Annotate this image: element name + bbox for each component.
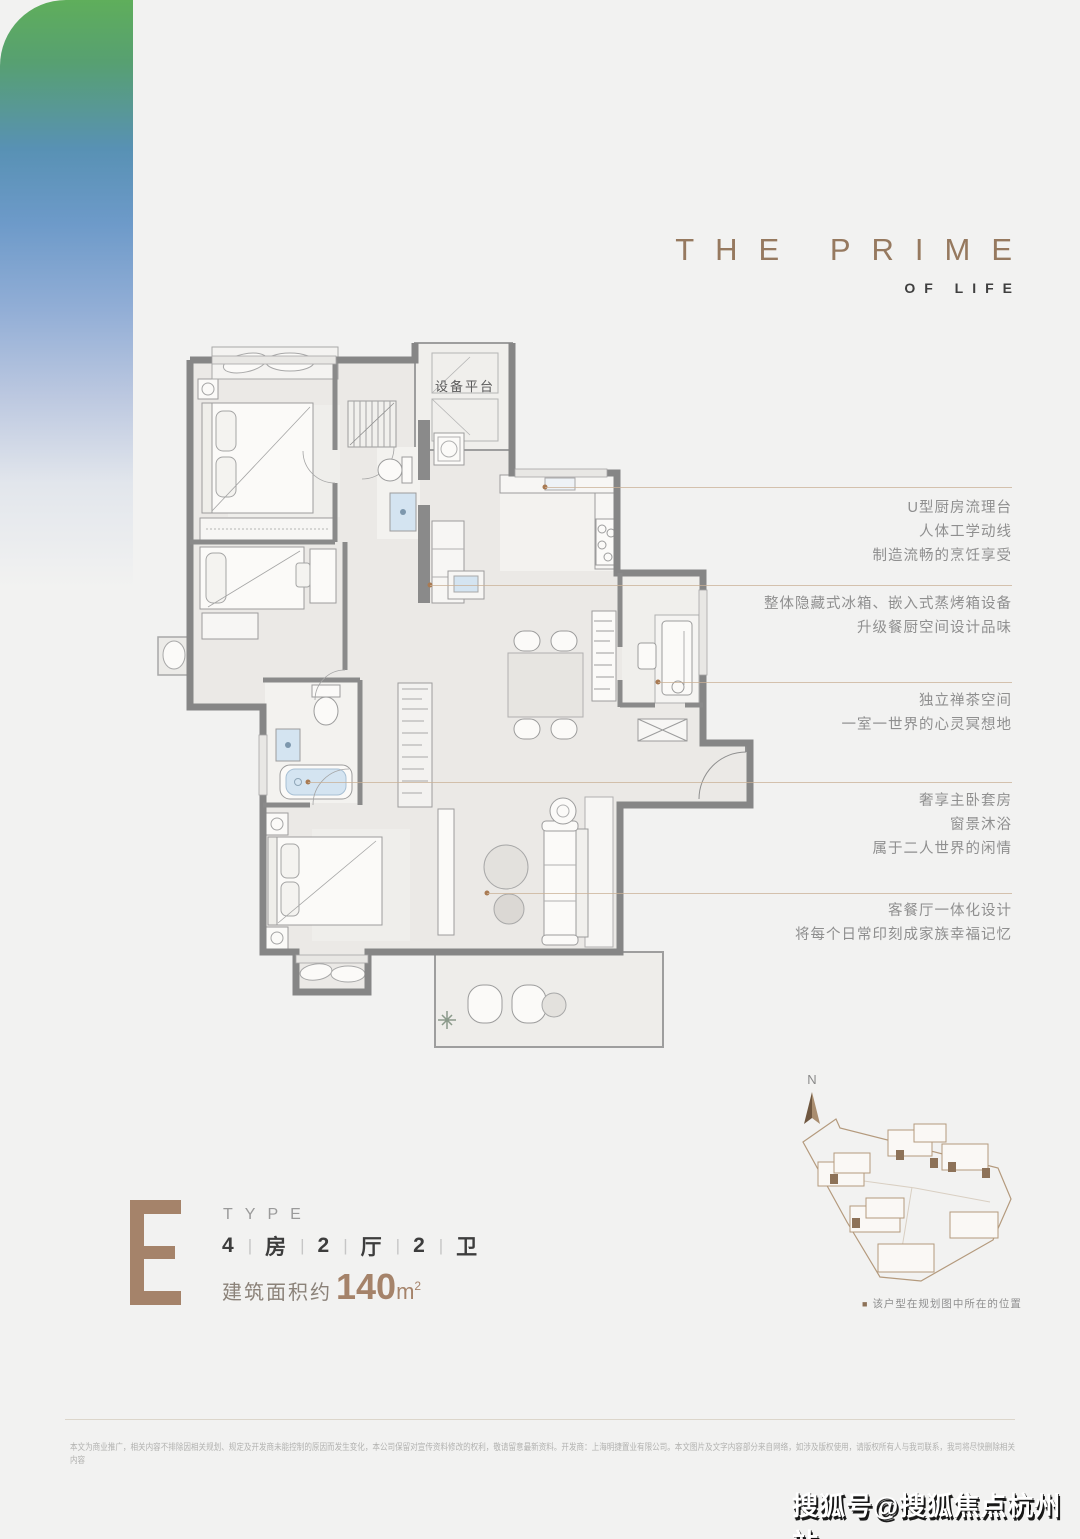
leader-line-master: [308, 782, 1012, 783]
annotation-line: 将每个日常印刻成家族幸福记忆: [572, 923, 1012, 947]
annotation-line: 独立禅茶空间: [572, 689, 1012, 713]
area-superscript: 2: [414, 1279, 421, 1293]
area-unit: m: [396, 1279, 414, 1305]
annotation-tea-room: 独立禅茶空间 一室一世界的心灵冥想地: [572, 689, 1012, 737]
north-arrow: [804, 1092, 812, 1124]
washer: [434, 433, 464, 465]
title-block: THE PRIME OF LIFE: [675, 232, 1012, 296]
type-word: TYPE: [223, 1206, 313, 1224]
annotation-line: 整体隐藏式冰箱、嵌入式蒸烤箱设备: [572, 592, 1012, 616]
north-label: N: [807, 1072, 816, 1087]
type-letter-E: [130, 1200, 181, 1305]
annotation-fridge: 整体隐藏式冰箱、嵌入式蒸烤箱设备 升级餐厨空间设计品味: [572, 592, 1012, 640]
halls-label: 厅: [361, 1231, 383, 1261]
poster-subtitle: OF LIFE: [675, 280, 1021, 296]
halls-count: 2: [318, 1234, 331, 1258]
annotation-line: 客餐厅一体化设计: [572, 899, 1012, 923]
annotation-kitchen: U型厨房流理台 人体工学动线 制造流畅的烹饪享受: [572, 496, 1012, 568]
gradient-ribbon: [0, 0, 133, 620]
coffee-table-large: [484, 845, 528, 889]
site-plan: N: [790, 1066, 1070, 1294]
rooms-count: 4: [222, 1234, 235, 1258]
annotation-line: 奢享主卧套房: [572, 789, 1012, 813]
annotation-line: 升级餐厨空间设计品味: [572, 616, 1012, 640]
annotation-line: U型厨房流理台: [572, 496, 1012, 520]
annotation-line: 窗景沐浴: [572, 813, 1012, 837]
bed-double-master: [268, 837, 382, 925]
annotation-master: 奢享主卧套房 窗景沐浴 属于二人世界的闲情: [572, 789, 1012, 861]
annotation-line: 制造流畅的烹饪享受: [572, 544, 1012, 568]
leader-line-tea-room: [658, 682, 1012, 683]
disclaimer-text: 本文为商业推广，相关内容不排除因相关规划、规定及开发商未能控制的原因而发生变化，…: [70, 1440, 1019, 1466]
desk: [310, 549, 336, 603]
area-prefix: 建筑面积约: [222, 1276, 332, 1305]
area-value: 140: [336, 1266, 396, 1308]
poster-page: THE PRIME OF LIFE 设备平台: [0, 0, 1080, 1539]
footer-divider: [65, 1419, 1015, 1420]
baths-count: 2: [413, 1234, 426, 1258]
leader-line-living: [487, 893, 1012, 894]
coffee-table-small: [494, 894, 524, 924]
bed-single: [200, 547, 304, 609]
layout-summary: 4 | 房 | 2 | 厅 | 2 | 卫: [222, 1231, 478, 1261]
leader-line-kitchen: [545, 487, 1012, 488]
site-plan-caption: ■该户型在规划图中所在的位置: [862, 1296, 1022, 1311]
poster-title: THE PRIME: [675, 232, 1033, 268]
leader-line-fridge: [430, 585, 1012, 586]
baths-label: 卫: [456, 1231, 478, 1261]
annotation-line: 人体工学动线: [572, 520, 1012, 544]
equipment-platform-label: 设备平台: [435, 379, 495, 394]
annotation-line: 一室一世界的心灵冥想地: [572, 713, 1012, 737]
wardrobe: [398, 683, 432, 807]
toilet-wc: [378, 457, 412, 483]
rooms-label: 房: [265, 1231, 287, 1261]
annotation-living: 客餐厅一体化设计 将每个日常印刻成家族幸福记忆: [572, 899, 1012, 947]
tv-console: [438, 809, 454, 935]
area-info: 建筑面积约 140 m 2: [222, 1266, 421, 1308]
annotation-line: 属于二人世界的闲情: [572, 837, 1012, 861]
legend-square-icon: ■: [862, 1299, 868, 1309]
watermark: 搜狐号@搜狐焦点杭州站: [792, 1486, 1080, 1539]
